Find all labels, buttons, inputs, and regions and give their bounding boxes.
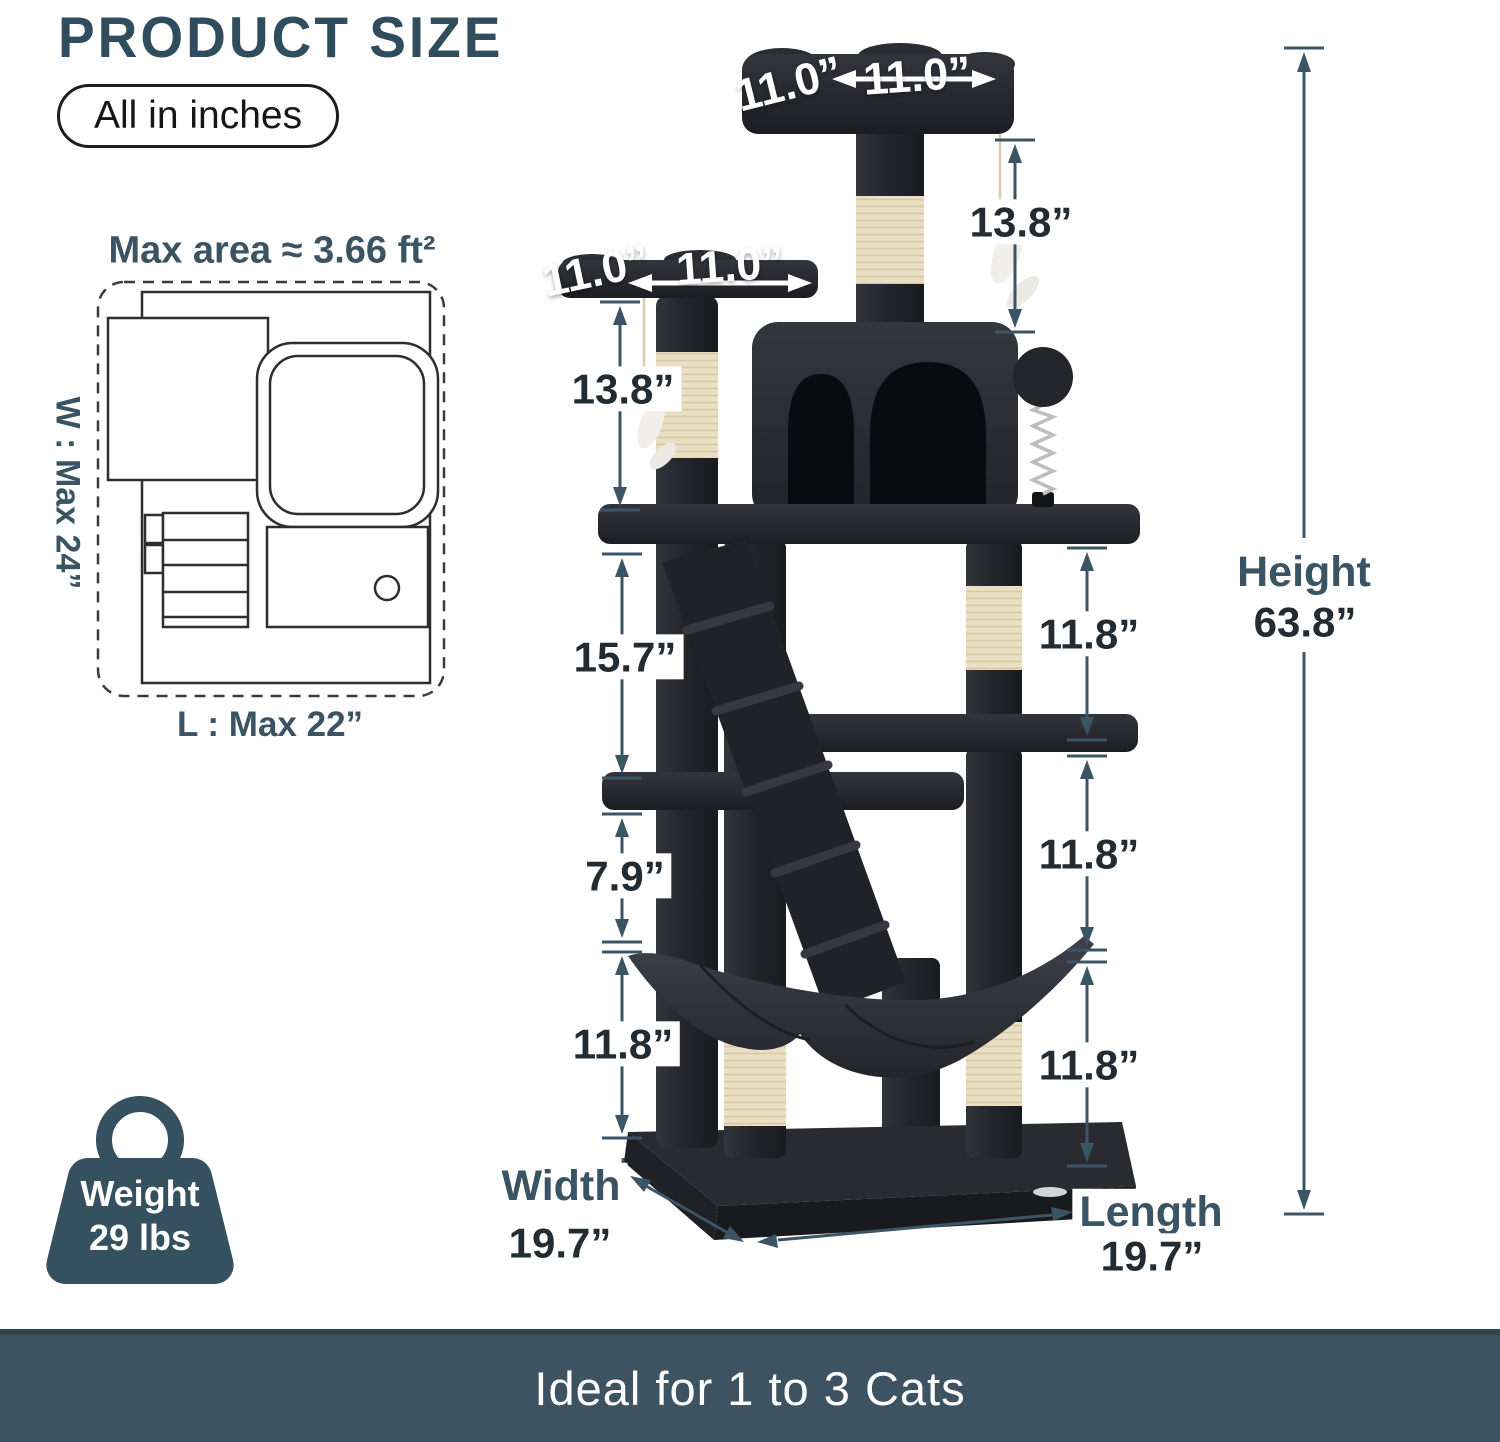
weight-value: 29 lbs: [89, 1217, 191, 1259]
width-label: Width: [494, 1163, 627, 1209]
banner-text: Ideal for 1 to 3 Cats: [534, 1361, 965, 1416]
page-title: PRODUCT SIZE: [58, 4, 503, 71]
floorplan-diagram: [98, 282, 444, 696]
dim-left-platform-width: 11.0”: [675, 236, 786, 295]
dim-left-post: 13.8”: [565, 366, 682, 411]
floorplan-left-platform: [108, 318, 268, 480]
floorplan-condo-inner: [270, 356, 424, 514]
unit-badge: All in inches: [57, 84, 339, 148]
dim-right-section-2: 11.8”: [1032, 831, 1146, 876]
floorplan-width-label: W : Max 24”: [48, 397, 87, 590]
floorplan-length-label: L : Max 22”: [177, 705, 363, 745]
product-size-infographic: PRODUCT SIZE All in inches Max area ≈ 3.…: [0, 0, 1500, 1442]
length-label: Length: [1072, 1189, 1229, 1235]
floorplan-ladder: [163, 513, 248, 627]
dim-top-post: 13.8”: [963, 199, 1080, 244]
width-value: 19.7”: [502, 1220, 619, 1265]
floorplan-tab: [145, 545, 163, 573]
dim-left-section-3: 11.8”: [566, 1021, 680, 1066]
floorplan-tab: [145, 515, 163, 543]
bottom-banner: Ideal for 1 to 3 Cats: [0, 1329, 1500, 1442]
floorplan-bottom-platform: [267, 527, 428, 627]
measure-width: [623, 1158, 744, 1242]
height-value: 63.8”: [1247, 599, 1364, 644]
max-area-label: Max area ≈ 3.66 ft²: [108, 230, 435, 273]
dim-right-section-1: 11.8”: [1032, 611, 1146, 656]
dim-left-section-2: 7.9”: [578, 853, 671, 898]
dim-right-section-3: 11.8”: [1032, 1042, 1146, 1087]
height-label: Height: [1230, 549, 1378, 595]
floorplan-post-circle: [375, 576, 399, 600]
measure-length: [757, 1196, 1079, 1248]
dim-top-platform-width: 11.0”: [862, 46, 973, 105]
weight-label: Weight: [80, 1173, 199, 1215]
length-value: 19.7”: [1094, 1233, 1211, 1278]
dim-left-section-1: 15.7”: [567, 634, 684, 679]
